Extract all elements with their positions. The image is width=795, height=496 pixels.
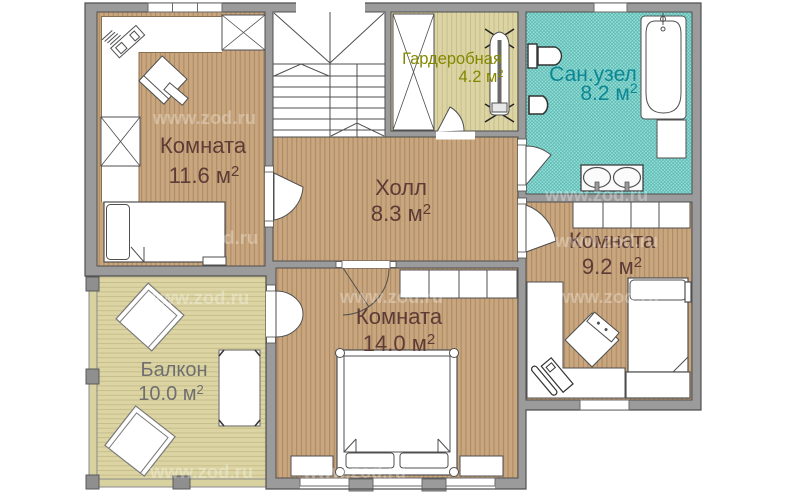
svg-text:www.zod.ru: www.zod.ru <box>149 461 253 482</box>
svg-text:Комната: Комната <box>160 133 247 158</box>
svg-text:8.3 м2: 8.3 м2 <box>371 201 431 226</box>
svg-text:www.zod.ru: www.zod.ru <box>339 286 443 307</box>
svg-text:www.zod.ru: www.zod.ru <box>544 184 648 205</box>
svg-text:10.0 м2: 10.0 м2 <box>138 382 203 405</box>
svg-text:4.2 м2: 4.2 м2 <box>459 68 504 86</box>
svg-text:www.zod.ru: www.zod.ru <box>302 461 406 482</box>
svg-text:www.zod.ru: www.zod.ru <box>145 287 249 308</box>
svg-text:Балкон: Балкон <box>140 359 207 381</box>
svg-text:www.zod.ru: www.zod.ru <box>154 227 258 248</box>
svg-text:9.2 м2: 9.2 м2 <box>582 254 642 279</box>
svg-text:www.zod.ru: www.zod.ru <box>555 286 659 307</box>
svg-text:www.zod.ru: www.zod.ru <box>152 107 256 128</box>
svg-text:11.6 м2: 11.6 м2 <box>169 163 240 188</box>
svg-text:Холл: Холл <box>375 175 427 200</box>
svg-text:Гардеробная: Гардеробная <box>402 50 502 68</box>
svg-text:www.zod.ru: www.zod.ru <box>554 230 658 251</box>
svg-text:8.2 м2: 8.2 м2 <box>580 80 637 105</box>
svg-text:Комната: Комната <box>356 304 443 329</box>
svg-text:14.0 м2: 14.0 м2 <box>363 331 435 356</box>
